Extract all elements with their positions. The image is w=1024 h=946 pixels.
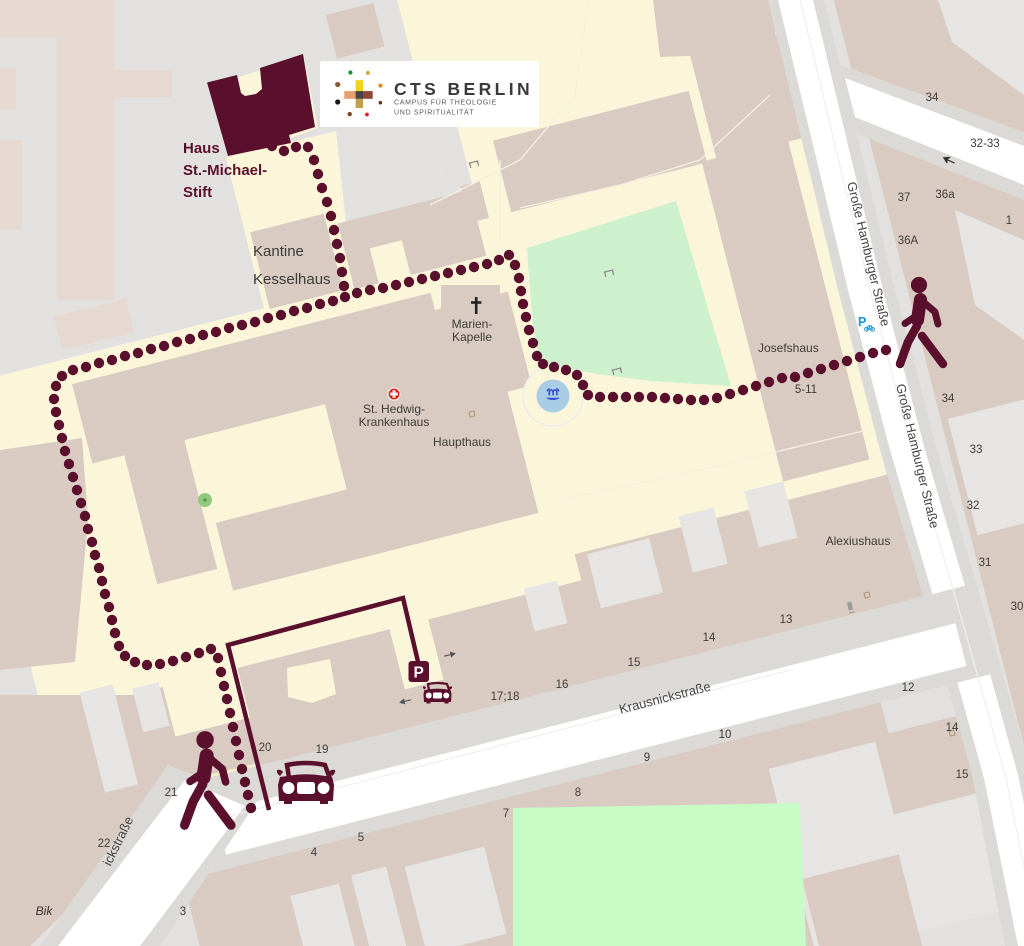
svg-text:St. Hedwig-: St. Hedwig- xyxy=(363,402,425,416)
svg-text:33: 33 xyxy=(970,444,983,456)
svg-text:Kapelle: Kapelle xyxy=(452,330,492,344)
svg-text:Haus: Haus xyxy=(183,140,220,157)
svg-text:36a: 36a xyxy=(935,189,955,201)
svg-text:15: 15 xyxy=(956,769,969,781)
svg-text:4: 4 xyxy=(311,847,318,859)
svg-text:8: 8 xyxy=(575,787,581,799)
svg-text:Kesselhaus: Kesselhaus xyxy=(253,271,331,288)
svg-text:34: 34 xyxy=(942,393,955,405)
svg-text:Marien-: Marien- xyxy=(452,317,493,331)
svg-text:20: 20 xyxy=(259,742,272,754)
svg-text:32-33: 32-33 xyxy=(970,138,999,150)
svg-text:15: 15 xyxy=(628,657,641,669)
svg-text:19: 19 xyxy=(316,744,329,756)
svg-text:Stift: Stift xyxy=(183,184,212,201)
svg-text:10: 10 xyxy=(719,729,732,741)
svg-text:Krankenhaus: Krankenhaus xyxy=(359,415,430,429)
svg-text:34: 34 xyxy=(926,92,939,104)
svg-text:14: 14 xyxy=(703,632,716,644)
svg-text:CTS BERLIN: CTS BERLIN xyxy=(394,79,533,99)
svg-text:13: 13 xyxy=(780,614,793,626)
svg-text:12: 12 xyxy=(902,682,915,694)
svg-text:Haupthaus: Haupthaus xyxy=(433,435,491,449)
svg-text:9: 9 xyxy=(644,752,650,764)
svg-text:CAMPUS FÜR THEOLOGIE: CAMPUS FÜR THEOLOGIE xyxy=(394,99,497,107)
svg-text:21: 21 xyxy=(165,787,178,799)
svg-text:17;18: 17;18 xyxy=(491,691,520,703)
svg-text:5: 5 xyxy=(358,832,364,844)
svg-text:P: P xyxy=(414,665,424,682)
svg-text:32: 32 xyxy=(967,500,980,512)
svg-text:3: 3 xyxy=(180,906,186,918)
svg-text:30: 30 xyxy=(1011,601,1024,613)
svg-text:16: 16 xyxy=(556,679,569,691)
svg-text:St.-Michael-: St.-Michael- xyxy=(183,162,267,179)
svg-text:22: 22 xyxy=(98,838,111,850)
svg-text:UND SPIRITUALITÄT: UND SPIRITUALITÄT xyxy=(394,109,474,117)
svg-text:14: 14 xyxy=(946,722,959,734)
svg-text:5-11: 5-11 xyxy=(795,384,817,396)
svg-text:P: P xyxy=(858,315,866,329)
svg-text:Bik: Bik xyxy=(36,904,54,918)
svg-text:1: 1 xyxy=(1006,215,1012,227)
svg-text:36A: 36A xyxy=(898,235,919,247)
svg-text:7: 7 xyxy=(503,808,509,820)
svg-text:Alexiushaus: Alexiushaus xyxy=(826,534,891,548)
svg-text:Josefshaus: Josefshaus xyxy=(758,341,819,355)
svg-text:37: 37 xyxy=(898,192,911,204)
svg-text:31: 31 xyxy=(979,557,992,569)
svg-text:Kantine: Kantine xyxy=(253,243,304,260)
